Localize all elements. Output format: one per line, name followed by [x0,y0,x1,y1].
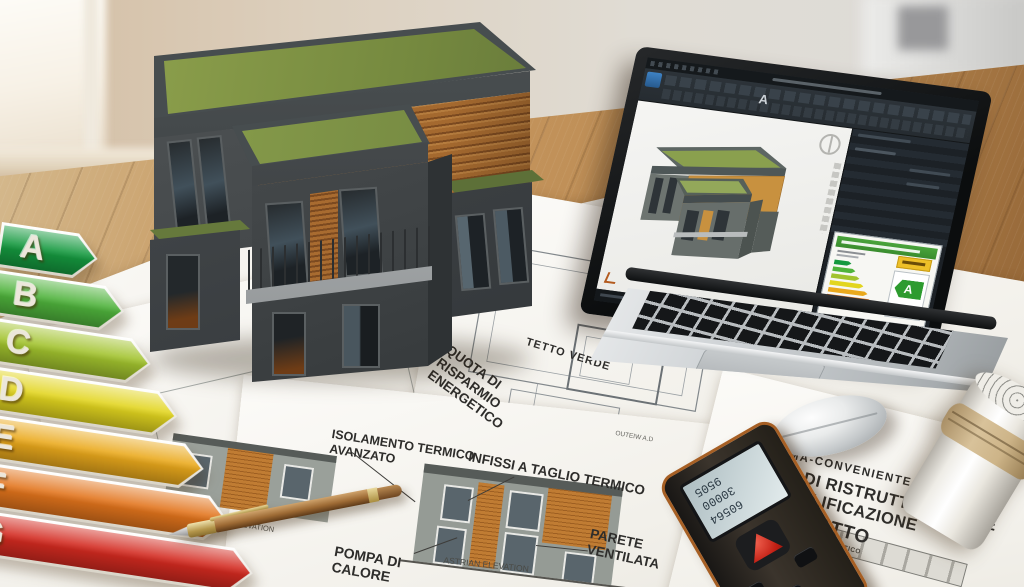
view-origin-marker [604,272,620,284]
certificate-grade-bar [832,266,856,274]
pen-cap [377,484,403,500]
window-frame [84,0,98,164]
certificate-subtext [837,253,859,258]
energy-grade-arrow [0,225,97,277]
elevation-window [440,484,474,523]
energy-grade-letter: B [11,274,41,316]
certificate-grade-bar [831,273,860,282]
laser-distance-meter: 60564 30000 9505 [622,476,832,587]
certificate-rating-arrow: A [893,279,925,300]
energy-grade-letter: A [18,227,48,269]
tower-window-lower [342,304,380,368]
certificate-grade-bar [834,259,852,266]
laser-meter-button [780,583,806,587]
navigation-wheel-icon [817,133,842,156]
rolled-blueprint [916,372,1024,572]
elevation-window [505,490,543,532]
scene: TETTO VERDE QUOTA DI RISPARMIO ENERGETIC… [0,0,1024,587]
property-rows [831,129,970,248]
laser-meter-button [741,580,767,587]
energy-grade-letter: C [4,322,34,364]
laser-measure-button [739,523,787,568]
viewport-house-model [616,116,804,269]
laser-meter-readings: 60564 30000 9505 [691,448,780,527]
app-logo-icon [644,71,662,88]
laptop: A [580,36,1024,400]
wooden-pen [168,498,418,568]
laser-meter-button [793,546,819,569]
